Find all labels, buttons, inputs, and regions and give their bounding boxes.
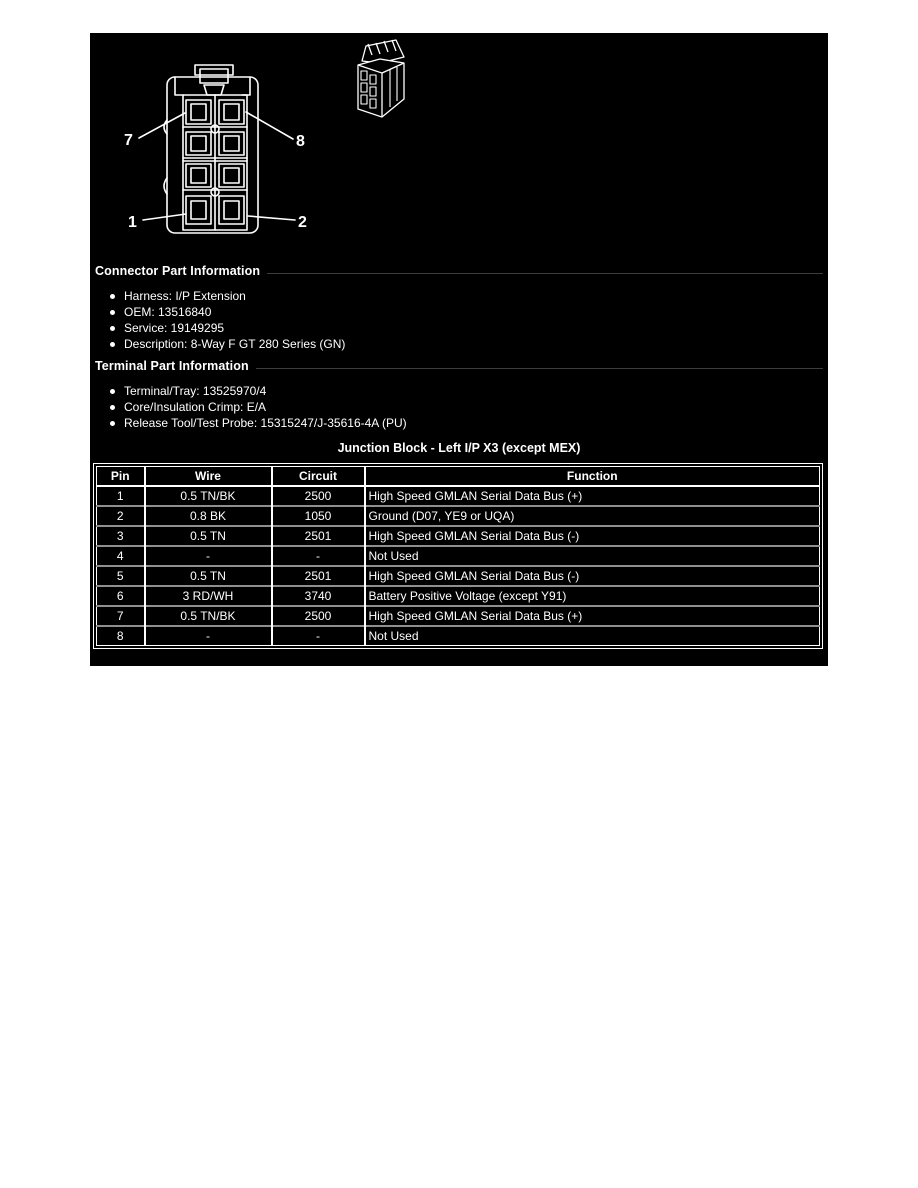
terminal-part-heading: Terminal Part Information bbox=[95, 358, 823, 374]
pin-table: Pin Wire Circuit Function 1 0.5 TN/BK 25… bbox=[93, 463, 823, 649]
cell-function: High Speed GMLAN Serial Data Bus (-) bbox=[365, 566, 820, 586]
connector-top-tab-inner bbox=[200, 69, 228, 83]
cell-circuit: 2500 bbox=[272, 606, 365, 626]
terminal-part-heading-label: Terminal Part Information bbox=[95, 359, 249, 373]
list-item: Service: 19149295 bbox=[95, 320, 823, 336]
connector-part-heading-label: Connector Part Information bbox=[95, 264, 260, 278]
list-item: Terminal/Tray: 13525970/4 bbox=[95, 383, 823, 399]
list-item-text: OEM: 13516840 bbox=[124, 305, 211, 319]
cell-pin: 8 bbox=[97, 626, 145, 646]
pin-callout-2: 2 bbox=[298, 214, 307, 231]
connector-front-view-diagram: 7 8 1 2 bbox=[118, 55, 348, 270]
column-header-circuit: Circuit bbox=[272, 467, 365, 487]
terminal-part-list: Terminal/Tray: 13525970/4 Core/Insulatio… bbox=[95, 383, 823, 431]
cell-pin: 4 bbox=[97, 546, 145, 566]
list-item: Harness: I/P Extension bbox=[95, 288, 823, 304]
connector-figure-panel: 7 8 1 2 bbox=[90, 33, 828, 666]
table-row: 4 - - Not Used bbox=[97, 546, 820, 566]
cell-function: Not Used bbox=[365, 626, 820, 646]
cell-wire: 0.5 TN/BK bbox=[145, 486, 272, 506]
cell-pin: 1 bbox=[97, 486, 145, 506]
callout-line-8 bbox=[246, 112, 293, 139]
connector-shoulders bbox=[175, 77, 250, 95]
callout-line-2 bbox=[248, 216, 295, 220]
table-row: 2 0.8 BK 1050 Ground (D07, YE9 or UQA) bbox=[97, 506, 820, 526]
heading-rule bbox=[267, 273, 823, 274]
bullet-icon bbox=[110, 421, 115, 426]
pin-callout-8: 8 bbox=[296, 133, 305, 150]
cell-circuit: - bbox=[272, 626, 365, 646]
cell-circuit: 2501 bbox=[272, 566, 365, 586]
cell-circuit: 2500 bbox=[272, 486, 365, 506]
connector-part-heading: Connector Part Information bbox=[95, 263, 823, 279]
list-item-text: Terminal/Tray: 13525970/4 bbox=[124, 384, 266, 398]
cell-pin: 5 bbox=[97, 566, 145, 586]
list-item: Release Tool/Test Probe: 15315247/J-3561… bbox=[95, 415, 823, 431]
pin-table-title: Junction Block - Left I/P X3 (except MEX… bbox=[95, 441, 823, 455]
list-item-text: Core/Insulation Crimp: E/A bbox=[124, 400, 266, 414]
cell-wire: 0.5 TN/BK bbox=[145, 606, 272, 626]
cell-function: High Speed GMLAN Serial Data Bus (-) bbox=[365, 526, 820, 546]
list-item: Core/Insulation Crimp: E/A bbox=[95, 399, 823, 415]
list-item: OEM: 13516840 bbox=[95, 304, 823, 320]
column-header-pin: Pin bbox=[97, 467, 145, 487]
cell-circuit: 3740 bbox=[272, 586, 365, 606]
table-row: 1 0.5 TN/BK 2500 High Speed GMLAN Serial… bbox=[97, 486, 820, 506]
table-row: 3 0.5 TN 2501 High Speed GMLAN Serial Da… bbox=[97, 526, 820, 546]
table-header-row: Pin Wire Circuit Function bbox=[97, 467, 820, 487]
bullet-icon bbox=[110, 326, 115, 331]
list-item-text: Service: 19149295 bbox=[124, 321, 224, 335]
cell-function: Battery Positive Voltage (except Y91) bbox=[365, 586, 820, 606]
panel-text-block: Connector Part Information Harness: I/P … bbox=[90, 263, 828, 649]
cell-wire: 3 RD/WH bbox=[145, 586, 272, 606]
table-row: 7 0.5 TN/BK 2500 High Speed GMLAN Serial… bbox=[97, 606, 820, 626]
column-header-function: Function bbox=[365, 467, 820, 487]
cell-wire: - bbox=[145, 546, 272, 566]
table-row: 6 3 RD/WH 3740 Battery Positive Voltage … bbox=[97, 586, 820, 606]
pin-callout-1: 1 bbox=[128, 214, 137, 231]
list-item: Description: 8-Way F GT 280 Series (GN) bbox=[95, 336, 823, 352]
list-item-text: Harness: I/P Extension bbox=[124, 289, 246, 303]
cell-wire: 0.5 TN bbox=[145, 566, 272, 586]
cell-wire: - bbox=[145, 626, 272, 646]
callout-line-1 bbox=[143, 214, 186, 220]
cell-pin: 7 bbox=[97, 606, 145, 626]
bullet-icon bbox=[110, 294, 115, 299]
connector-latch bbox=[204, 85, 224, 95]
bullet-icon bbox=[110, 389, 115, 394]
pin-table-body: 1 0.5 TN/BK 2500 High Speed GMLAN Serial… bbox=[97, 486, 820, 646]
list-item-text: Description: 8-Way F GT 280 Series (GN) bbox=[124, 337, 345, 351]
cell-pin: 6 bbox=[97, 586, 145, 606]
cell-pin: 2 bbox=[97, 506, 145, 526]
list-item-text: Release Tool/Test Probe: 15315247/J-3561… bbox=[124, 416, 407, 430]
cell-wire: 0.5 TN bbox=[145, 526, 272, 546]
column-header-wire: Wire bbox=[145, 467, 272, 487]
table-row: 5 0.5 TN 2501 High Speed GMLAN Serial Da… bbox=[97, 566, 820, 586]
cell-wire: 0.8 BK bbox=[145, 506, 272, 526]
connector-isometric-diagram bbox=[350, 35, 412, 123]
bullet-icon bbox=[110, 405, 115, 410]
cell-function: Ground (D07, YE9 or UQA) bbox=[365, 506, 820, 526]
cell-function: Not Used bbox=[365, 546, 820, 566]
bullet-icon bbox=[110, 310, 115, 315]
bullet-icon bbox=[110, 342, 115, 347]
callout-line-7 bbox=[139, 113, 185, 138]
heading-rule bbox=[256, 368, 823, 369]
pin-callout-7: 7 bbox=[124, 132, 133, 149]
cell-function: High Speed GMLAN Serial Data Bus (+) bbox=[365, 486, 820, 506]
pin-table-grid: Pin Wire Circuit Function 1 0.5 TN/BK 25… bbox=[96, 466, 820, 646]
cell-function: High Speed GMLAN Serial Data Bus (+) bbox=[365, 606, 820, 626]
cell-circuit: 2501 bbox=[272, 526, 365, 546]
cell-pin: 3 bbox=[97, 526, 145, 546]
cell-circuit: 1050 bbox=[272, 506, 365, 526]
cell-circuit: - bbox=[272, 546, 365, 566]
table-row: 8 - - Not Used bbox=[97, 626, 820, 646]
connector-part-list: Harness: I/P Extension OEM: 13516840 Ser… bbox=[95, 288, 823, 352]
